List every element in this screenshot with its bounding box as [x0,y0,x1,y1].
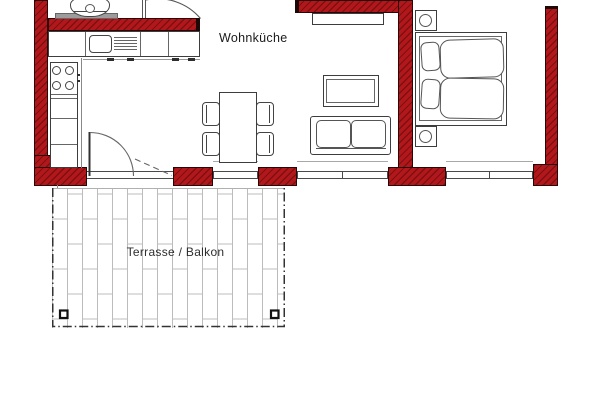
terrace-post-right [271,311,279,319]
drainer-line [114,37,137,38]
wall-end-cap [196,18,200,31]
drainer-line [114,40,137,41]
stove-burner [52,81,61,90]
duvet [440,77,505,119]
sofa-backrest-line [316,148,387,149]
chair-backrest [206,105,207,123]
cabinet-handle [107,58,114,61]
stove-knob [77,74,80,77]
drainer-line [114,49,137,50]
pillow [420,78,441,109]
counter-module-line [140,32,141,56]
sink [89,35,112,54]
nightstand-lamp [419,130,432,143]
cabinet-division [51,98,77,99]
wall-left [34,0,48,158]
window-2 [297,171,388,179]
wall-bottom-pier-c [258,167,297,186]
stove-burner [65,81,74,90]
kitchen-counter-left [50,62,78,169]
dining-chair [256,102,274,126]
window-frame-tick [387,171,388,179]
wall-right [545,6,558,166]
wall-end-cap [545,6,558,9]
wall-end-cap [295,0,299,13]
cabinet-division [51,118,77,119]
window-frame-tick [532,171,533,179]
stove-burner [65,66,74,75]
floorplan-canvas: Wohnküche Terrasse / Balkon [0,0,600,400]
cabinet-handle [127,58,134,61]
cabinet-division [51,144,77,145]
window-sill [297,161,388,162]
window-frame-tick [257,171,258,179]
stove-knob [77,80,80,83]
counter-front-line [83,59,200,60]
door-swing-overlay [0,0,600,400]
stove-burner [52,66,61,75]
kitchen-floor-edge [81,58,82,168]
dining-chair [202,102,220,126]
cabinet-handle [188,58,195,61]
sofa-cushion [351,120,387,148]
drainer-line [114,46,137,47]
window-frame-tick [446,171,447,179]
dining-chair [202,132,220,156]
chair-backrest [269,135,270,153]
cabinet-division [51,94,77,95]
window-1 [213,171,258,179]
chair-backrest [269,105,270,123]
top-door-arc [146,0,201,19]
kitchen-counter-top [48,31,200,57]
duvet [440,38,505,79]
dining-table [219,92,257,163]
window-mullion [342,171,343,179]
wall-top-living [295,0,413,13]
terrace-post-left [60,311,68,319]
counter-module-line [85,32,86,56]
nightstand-lamp [419,14,432,27]
dining-chair [256,132,274,156]
chair-backrest [206,135,207,153]
window-frame-tick [213,171,214,179]
wall-stub-above [142,0,146,18]
window-sill [446,161,533,162]
boiler-knob [85,4,95,13]
sofa-cushion [316,120,351,148]
window-mullion [489,171,490,179]
balcony-door-threshold [87,171,173,179]
wall-top-kitchen [48,18,200,31]
wall-bottom-pier-b [173,167,213,186]
balcony-door-arc [90,133,134,177]
pillow [420,41,441,71]
cabinet-handle [172,58,179,61]
wall-divider-bedroom [398,0,413,186]
coffee-table-inner [326,79,375,104]
counter-module-line [168,32,169,56]
sideboard [312,13,384,25]
window-3 [446,171,533,179]
room-label-terrasse: Terrasse / Balkon [100,245,251,259]
wall-bottom-pier-d [388,167,446,186]
room-label-wohnkueche: Wohnküche [219,31,287,45]
wall-bottom-pier-a [34,167,87,186]
window-frame-tick [297,171,298,179]
wall-corner-bottom-right [533,164,558,186]
drainer-line [114,43,137,44]
terrace-edge-connector [57,185,58,189]
